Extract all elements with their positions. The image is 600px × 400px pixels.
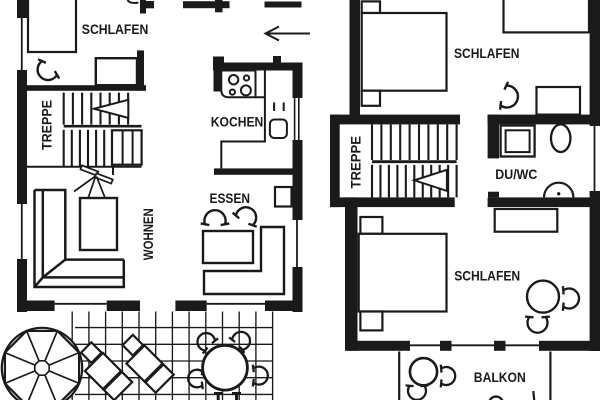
svg-text:SCHLAFEN: SCHLAFEN xyxy=(82,22,149,38)
svg-text:SCHLAFEN: SCHLAFEN xyxy=(454,269,520,285)
svg-text:TREPPE: TREPPE xyxy=(40,100,56,150)
svg-text:SCHLAFEN: SCHLAFEN xyxy=(454,46,520,62)
svg-text:KOCHEN: KOCHEN xyxy=(211,115,263,131)
svg-text:TREPPE: TREPPE xyxy=(348,136,364,189)
svg-text:ESSEN: ESSEN xyxy=(210,191,251,207)
svg-text:BALKON: BALKON xyxy=(474,370,526,386)
svg-text:DU/WC: DU/WC xyxy=(495,167,537,183)
svg-text:WOHNEN: WOHNEN xyxy=(141,208,157,260)
